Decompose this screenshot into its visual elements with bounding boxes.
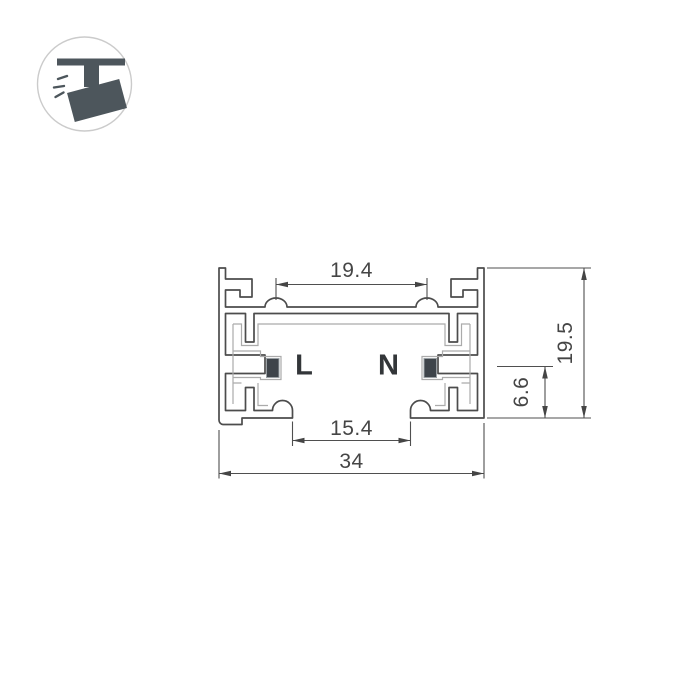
- dimension-top-width-value: 19.4: [330, 259, 373, 282]
- contact-right: [424, 359, 437, 378]
- profile-cross-section-drawing: L N 19.4 19.5 6.6 15.4: [0, 0, 700, 700]
- dimension-opening-width: 15.4: [293, 417, 411, 446]
- dimension-opening-width-value: 15.4: [330, 417, 373, 440]
- dimension-overall-height-value: 19.5: [554, 322, 577, 365]
- track-spotlight-icon: [38, 37, 132, 131]
- dimension-overall-height: 19.5: [487, 268, 591, 418]
- conductor-label-l: L: [295, 350, 313, 382]
- icon-stem: [84, 64, 99, 87]
- product-drawing-page: L N 19.4 19.5 6.6 15.4: [0, 0, 700, 700]
- shell-outline: [219, 268, 484, 425]
- contact-left: [267, 359, 280, 378]
- dimension-contact-height: 6.6: [497, 367, 553, 419]
- dimension-overall-width-value: 34: [339, 450, 363, 473]
- conductor-label-n: N: [378, 350, 399, 382]
- dimension-top-width: 19.4: [276, 259, 427, 300]
- dimension-contact-height-value: 6.6: [510, 377, 533, 408]
